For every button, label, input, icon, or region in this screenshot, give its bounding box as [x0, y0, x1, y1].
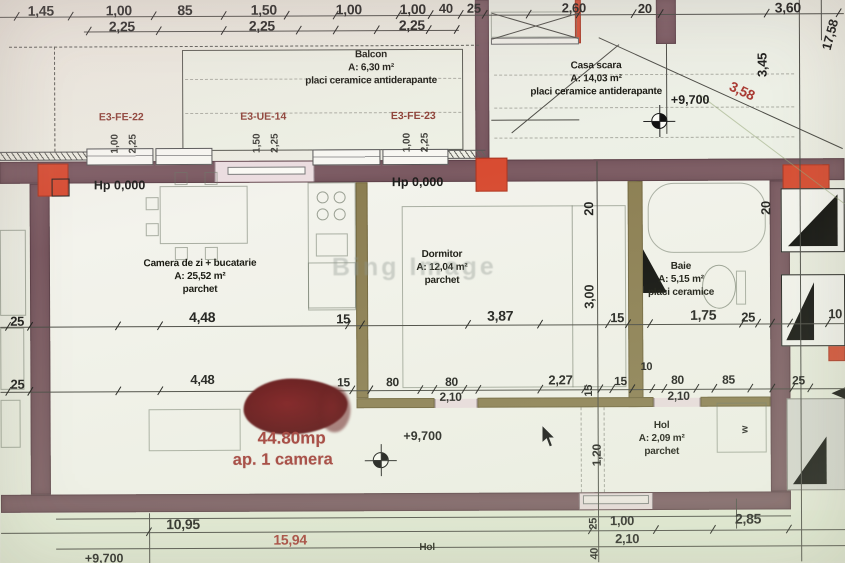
window-sill-4 — [382, 149, 448, 165]
stairwell-wall-left — [475, 0, 490, 160]
room-label-line: Baie — [648, 260, 714, 273]
dim-label: 1,75 — [690, 308, 716, 322]
chair-3 — [175, 172, 188, 185]
dim-label: 4,48 — [190, 373, 214, 386]
dim-label: 80 — [386, 376, 399, 388]
stair-rail — [491, 37, 579, 44]
level-label: +9,700 — [403, 429, 442, 443]
room-label: Hol — [419, 541, 435, 554]
dim-label: 3,00 — [583, 285, 596, 309]
dim-label: 15 — [614, 375, 627, 387]
room-label-line: A: 6,30 m² — [305, 61, 437, 75]
dim-label: w — [741, 426, 751, 434]
room-label-line: placi ceramice — [648, 286, 714, 299]
room-label-line: Balcon — [305, 48, 437, 62]
bathtub — [648, 183, 766, 254]
toilet-tank — [736, 271, 746, 305]
room-label-line: Casa scara — [530, 59, 662, 73]
dim-label: 25 — [467, 2, 481, 15]
dim-label: 1,00 — [610, 514, 634, 527]
room-label-line: A: 5,15 m² — [648, 273, 714, 286]
window-code-label: E3-UE-14 — [240, 112, 286, 123]
dim-label: 40 — [590, 548, 601, 560]
dim-label: 85 — [177, 3, 192, 17]
dim-label: 15 — [610, 311, 624, 324]
window-code-label: E3-FE-23 — [391, 111, 436, 122]
exterior-wall-left — [30, 184, 51, 495]
dim-label: 3,60 — [775, 0, 801, 14]
room-label-line: parchet — [144, 283, 257, 297]
dim-label: 1,45 — [28, 4, 54, 18]
room-label-line: A: 14,03 m² — [530, 72, 662, 86]
dimension-tick — [454, 25, 460, 34]
dim-label: 25 — [10, 378, 24, 391]
partition-living-bedroom — [356, 182, 369, 398]
apartment-name-annotation: ap. 1 camera — [233, 450, 333, 469]
dim-label: 20 — [759, 201, 772, 215]
exterior-wall-bottom — [1, 491, 791, 512]
dim-label: 2,25 — [399, 18, 425, 32]
dim-label: 80 — [671, 374, 684, 386]
level-label: Hp 0,000 — [392, 175, 443, 189]
stove-burner-3 — [317, 208, 329, 220]
room-label: Camera de zi + bucatarieA: 25,52 m²parch… — [144, 257, 257, 297]
dim-label: 17,58 — [820, 18, 840, 51]
stove-burner-1 — [317, 191, 329, 203]
dim-label: 2,60 — [562, 1, 586, 14]
window-sill-3 — [312, 149, 380, 165]
dim-label: 15,94 — [273, 533, 307, 547]
dim-label: 40 — [439, 2, 453, 15]
partition-bedroom-bath — [628, 181, 644, 407]
dim-label: 4,48 — [189, 310, 215, 324]
dim-label: 10,95 — [166, 517, 200, 531]
dim-label: 3,45 — [756, 53, 769, 77]
column-2 — [475, 158, 507, 192]
dim-label: 25 — [589, 518, 600, 530]
floor-plan-scan: 1,451,00851,501,001,0040252,60203,6017,5… — [0, 0, 845, 563]
chair-2 — [146, 223, 159, 236]
dim-label: 15 — [584, 385, 595, 397]
window-dim-label: 1,00 — [110, 134, 121, 154]
dim-label: 2,25 — [249, 19, 275, 33]
dim-label: 2,10 — [667, 390, 689, 402]
room-label-line: A: 25,52 m² — [144, 270, 257, 284]
dim-label: 85 — [722, 374, 735, 386]
apartment-area-annotation: 44.80mp — [258, 428, 326, 448]
level-label: +9,700 — [671, 93, 710, 107]
level-label: +9,700 — [85, 551, 124, 563]
window-sill-2 — [155, 148, 212, 165]
level-label: Hp 0,000 — [94, 178, 145, 192]
room-label: BalconA: 6,30 m²placi ceramice antiderap… — [305, 48, 437, 88]
partition-hall-a — [357, 398, 435, 408]
red-marker-smear — [318, 386, 350, 432]
room-label-line: Hol — [419, 541, 435, 554]
dashed-line — [54, 47, 55, 152]
partition-hall-b — [478, 397, 654, 408]
stove-burner-2 — [334, 191, 346, 203]
dim-label: 10 — [641, 362, 653, 373]
stove-burner-4 — [334, 208, 346, 220]
window-dim-label: 1,50 — [252, 133, 263, 153]
dim-label: 1,00 — [400, 2, 426, 16]
window-dim-label: 1,00 — [402, 133, 413, 153]
window-dim-label: 2,25 — [420, 133, 431, 153]
entrance-door-leaf — [583, 495, 649, 504]
room-label: BaieA: 5,15 m²placi ceramice — [648, 260, 714, 300]
dim-label: 1,00 — [106, 3, 132, 17]
dim-label: 1,00 — [336, 2, 362, 16]
balcony-parapet-left — [0, 151, 87, 160]
dim-label: 10 — [828, 307, 842, 320]
room-label-line: Camera de zi + bucatarie — [144, 257, 257, 271]
dim-label: 15 — [336, 312, 350, 325]
mouse-cursor — [541, 424, 558, 449]
dim-label: 25 — [792, 374, 805, 386]
room-label-line: Hol — [639, 419, 685, 432]
room-label-line: placi ceramice antiderapante — [530, 85, 662, 99]
dim-label: 1,20 — [591, 444, 603, 466]
chair-1 — [146, 197, 159, 210]
window-dim-label: 2,25 — [128, 134, 139, 154]
room-label: HolA: 2,09 m²parchet — [639, 419, 685, 459]
dim-label: 2,10 — [439, 391, 461, 403]
survey-cross — [659, 105, 660, 137]
stairwell-wall-top — [656, 0, 676, 44]
window-dim-label: 2,25 — [270, 133, 281, 153]
room-label: Casa scaraA: 14,03 m²placi ceramice anti… — [530, 59, 662, 99]
dim-label: 1,50 — [251, 3, 277, 17]
balcony-door-leaf — [227, 167, 305, 175]
dim-label: 2,25 — [109, 19, 135, 33]
dim-label: 20 — [638, 2, 652, 15]
column-detail-square — [52, 179, 70, 197]
dim-label: 2,10 — [615, 532, 639, 545]
dim-label: 80 — [445, 376, 458, 388]
chair-4 — [205, 172, 218, 185]
neighbor-fixture-3 — [1, 400, 21, 448]
floor-plan-drawing: 1,451,00851,501,001,0040252,60203,6017,5… — [0, 0, 845, 563]
dim-label: 25 — [10, 315, 24, 328]
dim-label: 25 — [741, 311, 755, 324]
dim-label: 2,85 — [735, 512, 761, 526]
neighbor-fixture-1 — [0, 230, 26, 316]
survey-cross — [381, 444, 382, 476]
room-label-line: placi ceramice antiderapante — [305, 74, 437, 88]
room-label-line: A: 2,09 m² — [639, 432, 685, 445]
dim-label: 20 — [582, 202, 595, 216]
dim-label: 2,27 — [548, 373, 572, 386]
dining-table — [160, 186, 248, 244]
sofa — [149, 409, 241, 451]
watermark: Bing Image — [332, 253, 497, 283]
dim-label: 3,87 — [487, 309, 513, 323]
room-label-line: parchet — [639, 445, 685, 458]
window-code-label: E3-FE-22 — [99, 112, 144, 123]
